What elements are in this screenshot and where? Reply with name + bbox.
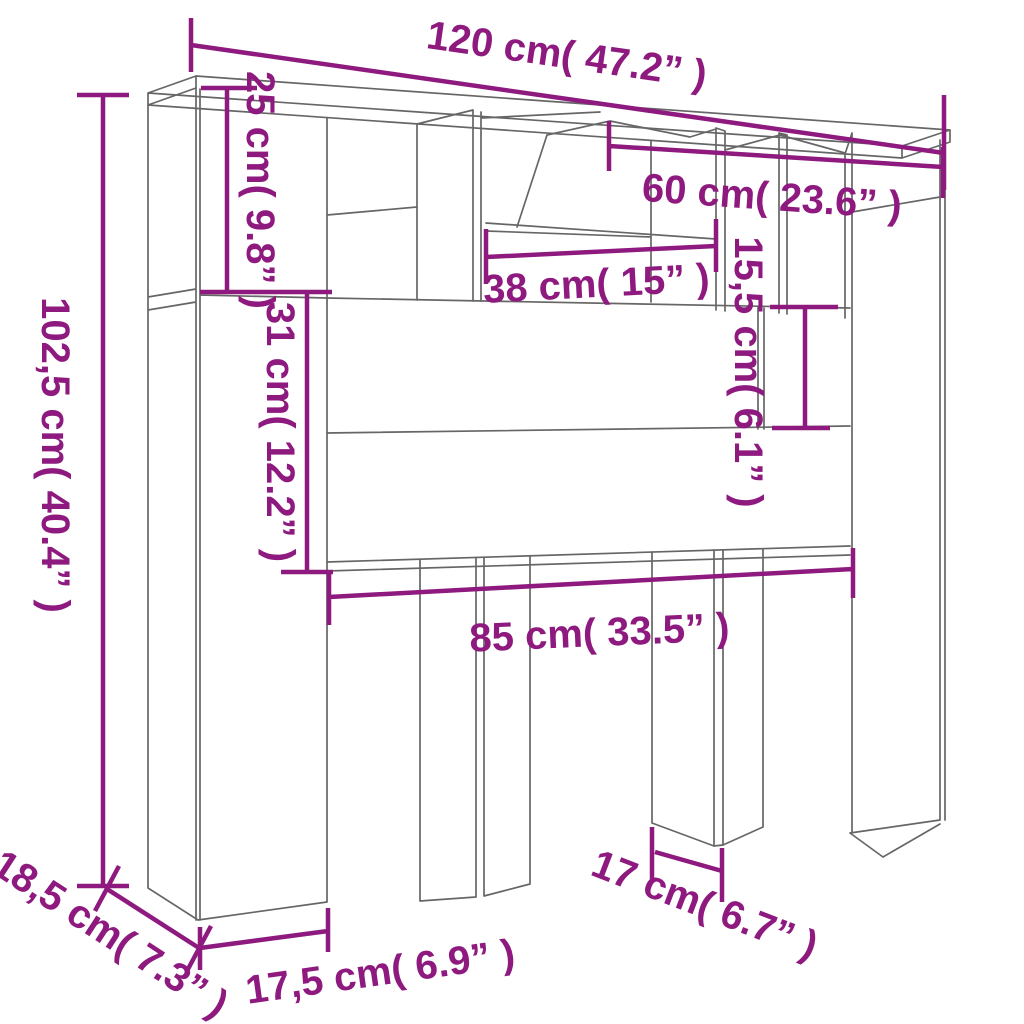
dimension-label: 25 cm( 9.8” ) [238, 71, 282, 309]
dimension-label: 85 cm( 33.5” ) [469, 605, 731, 660]
headboard-panels [327, 298, 850, 571]
dimension-top-compartment-height: 25 cm( 9.8” ) [200, 71, 332, 309]
dimension-label: 60 cm( 23.6” ) [641, 166, 904, 228]
dimension-leg-width: 17 cm( 6.7” ) [586, 827, 824, 968]
dimension-diagram: 120 cm( 47.2” ) 25 cm( 9.8” ) 31 cm( 12.… [0, 0, 1024, 1024]
dimension-line [77, 95, 129, 886]
dimension-right-compartment-height: 15,5 cm( 6.1” ) [726, 236, 838, 507]
dimension-label: 17,5 cm( 6.9” ) [243, 931, 518, 1012]
dimension-label: 15,5 cm( 6.1” ) [726, 236, 770, 507]
headboard-cabinet-drawing: 120 cm( 47.2” ) 25 cm( 9.8” ) 31 cm( 12.… [0, 0, 1024, 1024]
dimension-lower-opening-width: 85 cm( 33.5” ) [329, 548, 853, 661]
right-side-panel [845, 133, 945, 857]
legs [420, 549, 763, 901]
dimension-label: 17 cm( 6.7” ) [586, 842, 824, 968]
dimension-label: 31 cm( 12.2” ) [258, 302, 302, 562]
dimension-annotations: 120 cm( 47.2” ) 25 cm( 9.8” ) 31 cm( 12.… [0, 13, 944, 1024]
dimension-line [770, 307, 838, 428]
dimension-label: 102,5 cm( 40.4” ) [33, 297, 77, 613]
dimension-total-width: 120 cm( 47.2” ) [191, 13, 944, 190]
dimension-middle-panel-height: 31 cm( 12.2” ) [258, 292, 333, 572]
dimension-label: 38 cm( 15” ) [482, 256, 711, 312]
dimension-left-column-width: 17,5 cm( 6.9” ) [200, 908, 518, 1013]
dimension-total-height: 102,5 cm( 40.4” ) [33, 95, 129, 886]
